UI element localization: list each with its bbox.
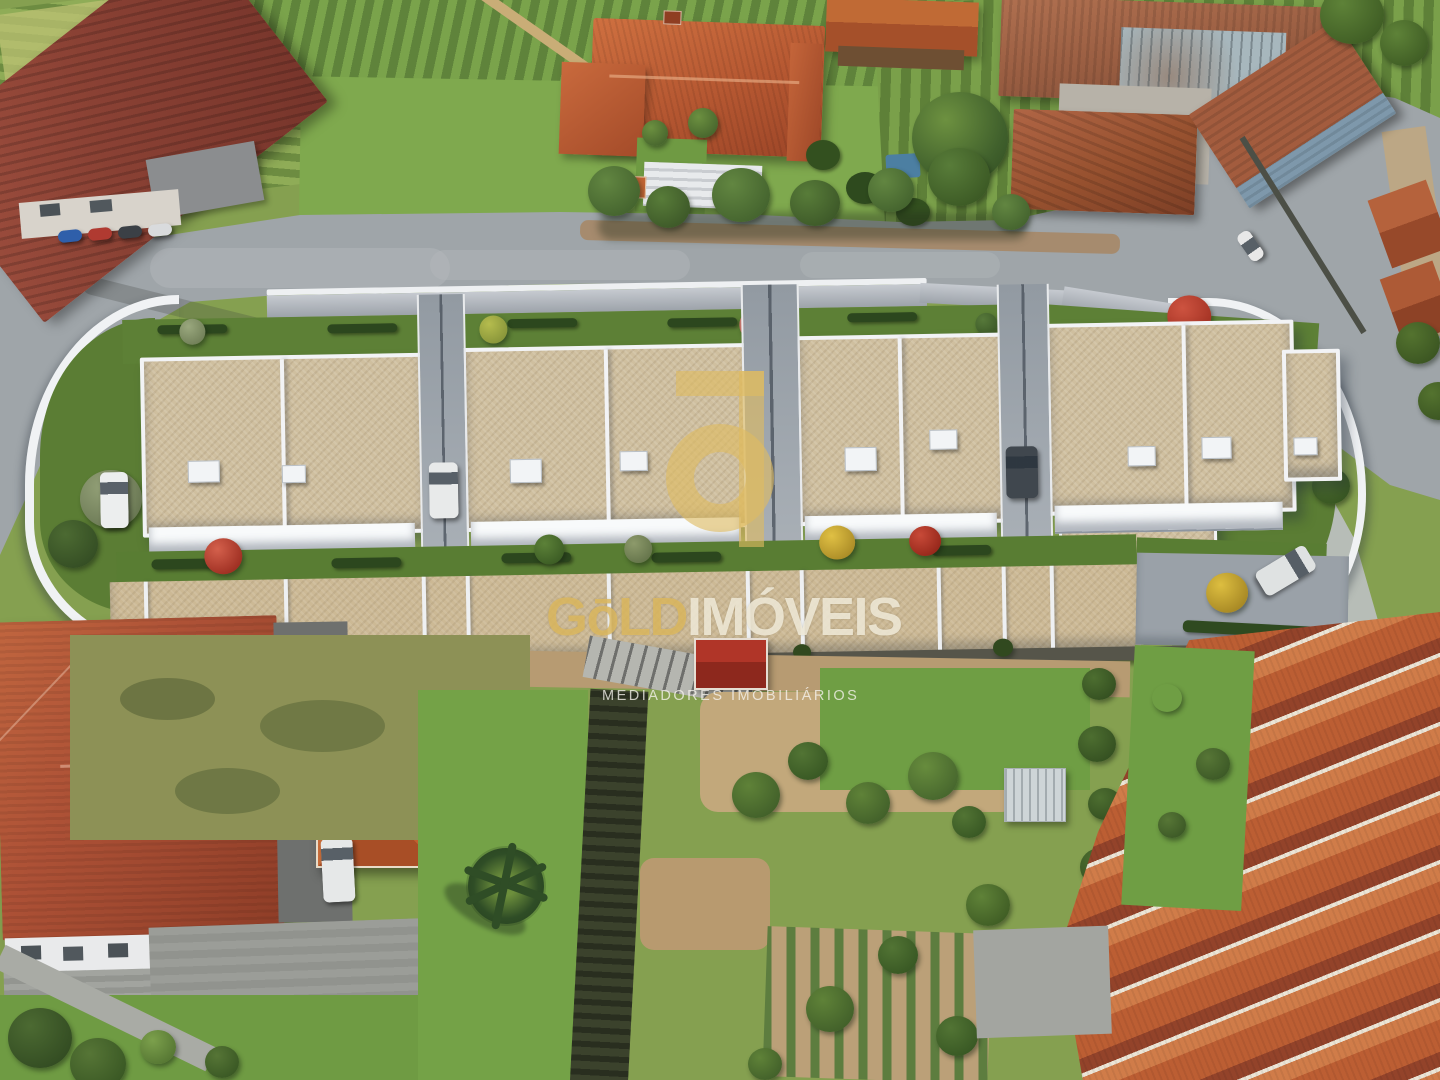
skylight	[620, 451, 648, 471]
car-white	[320, 837, 355, 903]
brick-house-roof	[1010, 109, 1197, 215]
scrub-blob	[120, 678, 215, 720]
tree	[205, 1046, 239, 1078]
skylight	[188, 460, 220, 483]
garden-plots	[762, 926, 992, 1080]
tree	[1380, 20, 1428, 66]
hedge	[507, 318, 577, 328]
roof-divider	[1181, 325, 1188, 509]
car-white	[147, 223, 172, 237]
house-block-roof	[1045, 320, 1296, 516]
tree	[1152, 684, 1182, 712]
window	[40, 203, 61, 217]
skylight	[929, 429, 957, 449]
tree	[846, 782, 890, 824]
roof-divider	[604, 350, 611, 526]
tree	[588, 166, 640, 216]
tree	[688, 108, 718, 138]
roof-divider	[280, 359, 287, 531]
aerial-photo: GōLDIMÓVEIS MEDIADORES IMOBILIÁRIOS	[0, 0, 1440, 1080]
tree	[788, 742, 828, 780]
tree	[878, 936, 918, 974]
tree	[1396, 322, 1440, 364]
hedge	[331, 557, 401, 568]
window	[108, 943, 128, 958]
tree	[1082, 668, 1116, 700]
skylight	[510, 459, 542, 484]
car-white	[100, 472, 129, 528]
house-block-roof	[140, 353, 429, 538]
tree	[748, 1048, 782, 1080]
tree	[908, 752, 958, 800]
skylight	[282, 465, 306, 483]
roof-divider	[898, 338, 905, 520]
skylight	[1293, 437, 1317, 455]
skylight	[844, 447, 876, 472]
skylight	[1201, 437, 1231, 460]
tree	[806, 986, 854, 1032]
hedge	[327, 323, 397, 333]
neighbor-lawn	[1121, 645, 1254, 911]
window	[90, 199, 113, 213]
tree	[140, 1030, 176, 1064]
tree	[868, 168, 914, 212]
house-facade	[1055, 502, 1283, 534]
road-wear	[150, 248, 450, 288]
tree	[966, 884, 1010, 926]
house-block-roof	[796, 333, 1011, 527]
tree	[936, 1016, 978, 1056]
hedge	[847, 312, 917, 322]
tree	[1158, 812, 1186, 838]
road-wear	[800, 252, 1000, 278]
tree	[790, 180, 840, 226]
car-white	[429, 462, 459, 518]
concrete-pad	[973, 926, 1112, 1039]
tree	[646, 186, 690, 228]
tree	[928, 148, 990, 206]
window	[63, 946, 83, 961]
tree	[952, 806, 986, 838]
scrub-blob	[175, 768, 280, 814]
tree	[1196, 748, 1230, 780]
car-dark	[1005, 446, 1038, 499]
tree	[8, 1008, 72, 1068]
house-block-roof-step	[1282, 349, 1342, 482]
tree	[712, 168, 770, 222]
tree	[732, 772, 780, 818]
hedge	[651, 552, 721, 563]
dirt-patch	[640, 858, 770, 950]
hedge	[667, 317, 737, 327]
chimney	[663, 10, 681, 25]
house-block-roof	[462, 343, 755, 532]
metal-shed	[1004, 768, 1066, 822]
shed-red-roof	[694, 638, 768, 690]
tree	[1078, 726, 1116, 762]
hedge	[931, 545, 991, 556]
skylight	[1128, 446, 1156, 466]
hedge	[806, 140, 840, 170]
scrub-blob	[260, 700, 385, 752]
tree	[642, 120, 668, 146]
tree	[992, 194, 1030, 230]
road-wear	[430, 250, 690, 280]
